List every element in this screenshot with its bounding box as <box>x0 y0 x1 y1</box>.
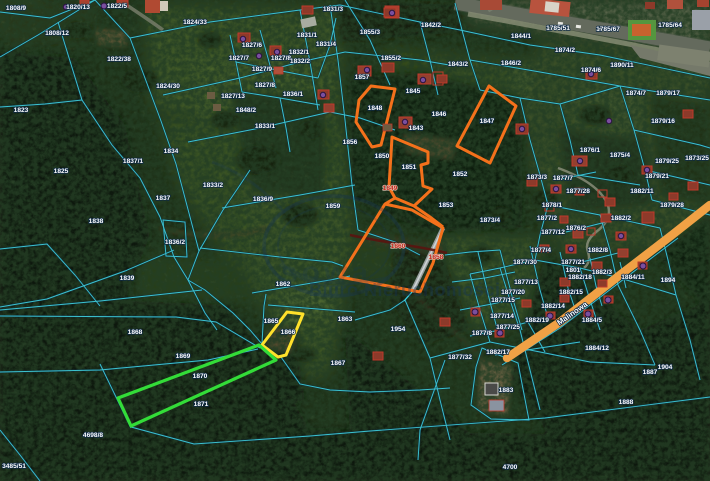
svg-text:1882/18: 1882/18 <box>568 274 592 281</box>
svg-text:4700: 4700 <box>503 464 518 471</box>
svg-text:1862: 1862 <box>276 281 291 288</box>
svg-text:1884/11: 1884/11 <box>621 274 645 281</box>
svg-text:1838: 1838 <box>89 218 104 225</box>
svg-text:1882/14: 1882/14 <box>541 303 565 310</box>
svg-text:1859: 1859 <box>326 203 341 210</box>
svg-text:1894: 1894 <box>661 277 676 284</box>
svg-text:1871: 1871 <box>194 401 209 408</box>
svg-text:1873/25: 1873/25 <box>685 155 709 162</box>
svg-text:1846: 1846 <box>432 111 447 118</box>
svg-text:1801: 1801 <box>566 267 581 274</box>
svg-text:1878/1: 1878/1 <box>542 202 563 209</box>
svg-text:1836/2: 1836/2 <box>165 239 186 246</box>
svg-text:1824/33: 1824/33 <box>183 19 207 26</box>
svg-text:1877/21: 1877/21 <box>561 259 585 266</box>
svg-text:1877/8: 1877/8 <box>472 330 493 337</box>
svg-text:1882/8: 1882/8 <box>588 247 609 254</box>
svg-text:1877/12: 1877/12 <box>541 229 565 236</box>
svg-text:1832/1: 1832/1 <box>289 49 310 56</box>
svg-text:1834: 1834 <box>164 148 179 155</box>
svg-text:1884/5: 1884/5 <box>582 317 603 324</box>
svg-text:1882/17: 1882/17 <box>486 349 510 356</box>
svg-text:1877/20: 1877/20 <box>501 289 525 296</box>
svg-text:1954: 1954 <box>391 326 406 333</box>
svg-text:1831/4: 1831/4 <box>316 41 337 48</box>
svg-text:1879/21: 1879/21 <box>645 173 669 180</box>
svg-text:3485/51: 3485/51 <box>2 463 26 470</box>
svg-text:1823: 1823 <box>14 107 29 114</box>
svg-text:1856: 1856 <box>343 139 358 146</box>
svg-text:1870: 1870 <box>193 373 208 380</box>
svg-text:1855/3: 1855/3 <box>360 29 381 36</box>
svg-text:1882/15: 1882/15 <box>559 289 583 296</box>
svg-text:1877/14: 1877/14 <box>490 313 514 320</box>
svg-text:1846/2: 1846/2 <box>501 60 522 67</box>
svg-text:1884/12: 1884/12 <box>585 345 609 352</box>
svg-text:1882/3: 1882/3 <box>592 269 613 276</box>
svg-text:1785/51: 1785/51 <box>546 25 570 32</box>
svg-text:1845: 1845 <box>406 88 421 95</box>
svg-text:1874/7: 1874/7 <box>626 90 647 97</box>
svg-text:1848: 1848 <box>368 105 383 112</box>
svg-text:1875/4: 1875/4 <box>610 152 631 159</box>
svg-text:1851: 1851 <box>402 164 417 171</box>
svg-text:1858: 1858 <box>429 254 444 261</box>
svg-text:1866: 1866 <box>281 329 296 336</box>
svg-text:1883: 1883 <box>499 387 514 394</box>
svg-text:1824/30: 1824/30 <box>156 83 180 90</box>
svg-text:1888: 1888 <box>619 399 634 406</box>
svg-text:1839: 1839 <box>120 275 135 282</box>
svg-text:1785/64: 1785/64 <box>658 22 682 29</box>
svg-text:1879/16: 1879/16 <box>651 118 675 125</box>
svg-text:1855/2: 1855/2 <box>381 55 402 62</box>
svg-text:1822/38: 1822/38 <box>107 56 131 63</box>
svg-text:1832/2: 1832/2 <box>290 58 311 65</box>
svg-text:1904: 1904 <box>658 364 673 371</box>
svg-text:1890/11: 1890/11 <box>610 62 634 69</box>
svg-text:1879/17: 1879/17 <box>656 90 680 97</box>
svg-text:1808/9: 1808/9 <box>6 5 27 12</box>
svg-text:1843: 1843 <box>409 125 424 132</box>
svg-text:1785/67: 1785/67 <box>596 26 620 33</box>
svg-text:1833/2: 1833/2 <box>203 182 224 189</box>
svg-text:1857: 1857 <box>355 74 370 81</box>
svg-text:1853: 1853 <box>439 202 454 209</box>
svg-text:1827/9: 1827/9 <box>252 66 273 73</box>
svg-text:1877/30: 1877/30 <box>513 259 537 266</box>
svg-text:1827/6: 1827/6 <box>242 42 263 49</box>
svg-text:1827/13: 1827/13 <box>221 93 245 100</box>
svg-text:1877/32: 1877/32 <box>448 354 472 361</box>
svg-text:1837: 1837 <box>156 195 171 202</box>
svg-text:1877/15: 1877/15 <box>491 297 515 304</box>
svg-text:1877/7: 1877/7 <box>553 175 574 182</box>
svg-text:1873/4: 1873/4 <box>480 217 501 224</box>
svg-text:1837/1: 1837/1 <box>123 158 144 165</box>
svg-text:1877/28: 1877/28 <box>566 188 590 195</box>
svg-text:1847: 1847 <box>480 118 495 125</box>
svg-text:1877/4: 1877/4 <box>531 247 552 254</box>
svg-text:1842/2: 1842/2 <box>421 22 442 29</box>
svg-text:1852: 1852 <box>453 171 468 178</box>
svg-text:sowa: sowa <box>281 256 372 289</box>
svg-text:1887: 1887 <box>643 369 658 376</box>
svg-text:1879/25: 1879/25 <box>655 158 679 165</box>
svg-text:1877/25: 1877/25 <box>496 324 520 331</box>
svg-text:1877/13: 1877/13 <box>514 279 538 286</box>
svg-text:1860: 1860 <box>391 243 406 250</box>
svg-text:1867: 1867 <box>331 360 346 367</box>
svg-text:1882/11: 1882/11 <box>630 188 654 195</box>
svg-text:1843/2: 1843/2 <box>448 61 469 68</box>
svg-text:1882/2: 1882/2 <box>611 215 632 222</box>
svg-text:4698/8: 4698/8 <box>83 432 104 439</box>
svg-text:1827/8: 1827/8 <box>255 82 276 89</box>
svg-text:1876/2: 1876/2 <box>566 225 587 232</box>
svg-text:1831/3: 1831/3 <box>323 6 344 13</box>
svg-text:1831/1: 1831/1 <box>297 32 318 39</box>
svg-text:1836/1: 1836/1 <box>283 91 304 98</box>
svg-text:1877/2: 1877/2 <box>537 215 558 222</box>
svg-text:1879/28: 1879/28 <box>660 202 684 209</box>
svg-text:1825: 1825 <box>54 168 69 175</box>
svg-text:1827/8: 1827/8 <box>271 55 292 62</box>
svg-text:1836/9: 1836/9 <box>253 196 274 203</box>
svg-text:1865: 1865 <box>264 318 279 325</box>
svg-text:1850: 1850 <box>375 153 390 160</box>
svg-text:1874/6: 1874/6 <box>581 67 602 74</box>
svg-text:1849: 1849 <box>383 185 398 192</box>
svg-text:1868: 1868 <box>128 329 143 336</box>
svg-text:1869: 1869 <box>176 353 191 360</box>
svg-text:1820/13: 1820/13 <box>66 4 90 11</box>
svg-text:1844/1: 1844/1 <box>511 33 532 40</box>
svg-text:1882/19: 1882/19 <box>525 317 549 324</box>
svg-text:1833/1: 1833/1 <box>255 123 276 130</box>
svg-text:1863: 1863 <box>338 316 353 323</box>
svg-text:1827/7: 1827/7 <box>229 55 250 62</box>
svg-text:1822/5: 1822/5 <box>107 3 128 10</box>
svg-text:1876/1: 1876/1 <box>580 147 601 154</box>
svg-text:1808/12: 1808/12 <box>45 30 69 37</box>
svg-text:1848/2: 1848/2 <box>236 107 257 114</box>
svg-text:1874/2: 1874/2 <box>555 47 576 54</box>
svg-text:1873/3: 1873/3 <box>527 174 548 181</box>
